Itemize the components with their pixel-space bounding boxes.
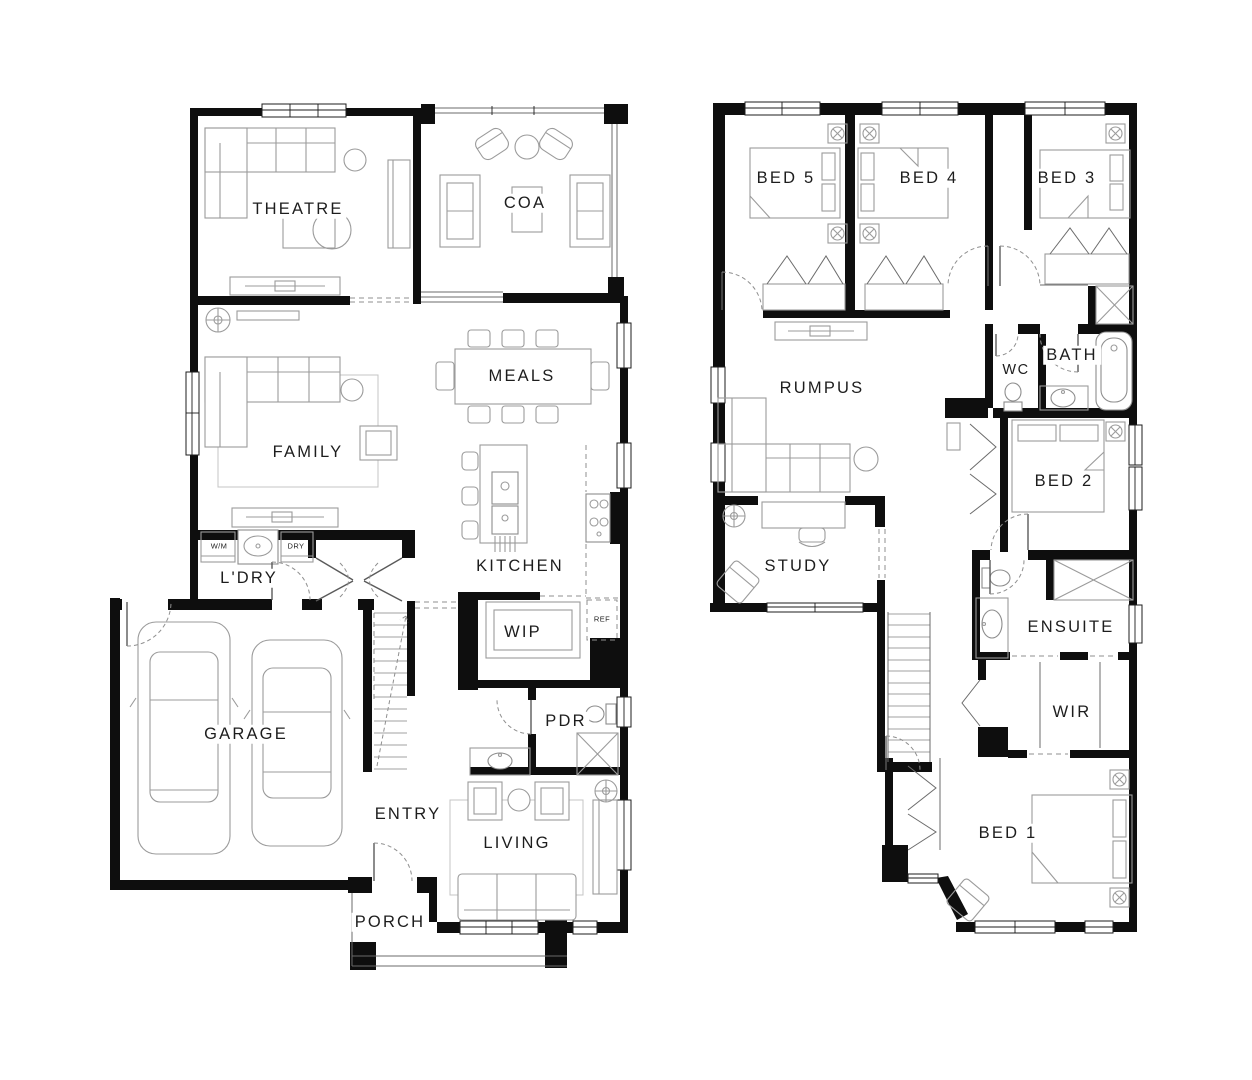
kitchen-fixtures — [415, 445, 620, 640]
room-label-kitchen: KITCHEN — [473, 557, 567, 576]
coa-furniture — [440, 126, 610, 247]
bedroom-furniture — [750, 148, 1132, 923]
room-label-entry: ENTRY — [372, 805, 445, 824]
room-label-meals: MEALS — [486, 367, 559, 386]
room-label-family: FAMILY — [270, 443, 347, 462]
room-label-rumpus: RUMPUS — [777, 379, 868, 398]
ceiling-fan-icon — [595, 780, 617, 802]
room-label-wir: WIR — [1050, 703, 1095, 722]
rumpus-furniture — [718, 322, 960, 492]
appliance-label-wm: W/M — [210, 542, 229, 550]
room-label-study: STUDY — [762, 557, 835, 576]
room-label-ensuite: ENSUITE — [1025, 618, 1118, 637]
downlight-icons — [828, 124, 1129, 907]
room-label-bed5: BED 5 — [754, 169, 819, 188]
room-label-wc: WC — [999, 362, 1032, 379]
theatre-slider — [350, 298, 413, 302]
room-label-garage: GARAGE — [201, 725, 291, 744]
room-label-laundry: L'DRY — [217, 569, 281, 588]
appliance-label-ref: REF — [593, 615, 611, 623]
linen-cupboard-icon — [1096, 286, 1133, 324]
room-label-living: LIVING — [480, 834, 553, 853]
floor-plan-drawing — [0, 0, 1252, 1080]
floor-plan-page: THEATRE COA MEALS FAMILY KITCHEN L'DRY W… — [0, 0, 1252, 1080]
room-label-pdr: PDR — [542, 712, 589, 731]
hall-doors — [272, 558, 402, 601]
room-label-bed3: BED 3 — [1035, 169, 1100, 188]
ceiling-fan-icon — [206, 308, 230, 332]
room-label-coa: COA — [501, 194, 549, 213]
room-label-porch: PORCH — [352, 913, 429, 932]
room-label-theatre: THEATRE — [249, 200, 346, 219]
ceiling-fan-icon — [723, 505, 745, 527]
room-label-bed4: BED 4 — [897, 169, 962, 188]
shower-icon — [1054, 560, 1133, 600]
room-label-bed2: BED 2 — [1032, 472, 1097, 491]
family-furniture — [205, 308, 397, 527]
room-label-bath: BATH — [1043, 346, 1101, 365]
study-furniture — [715, 502, 845, 605]
room-label-wip: WIP — [501, 623, 545, 642]
stairs-first — [888, 612, 930, 762]
appliance-label-dry: DRY — [287, 542, 306, 550]
stairs-ground — [374, 613, 408, 769]
room-label-bed1: BED 1 — [976, 824, 1041, 843]
first-floor-plan — [710, 102, 1142, 933]
